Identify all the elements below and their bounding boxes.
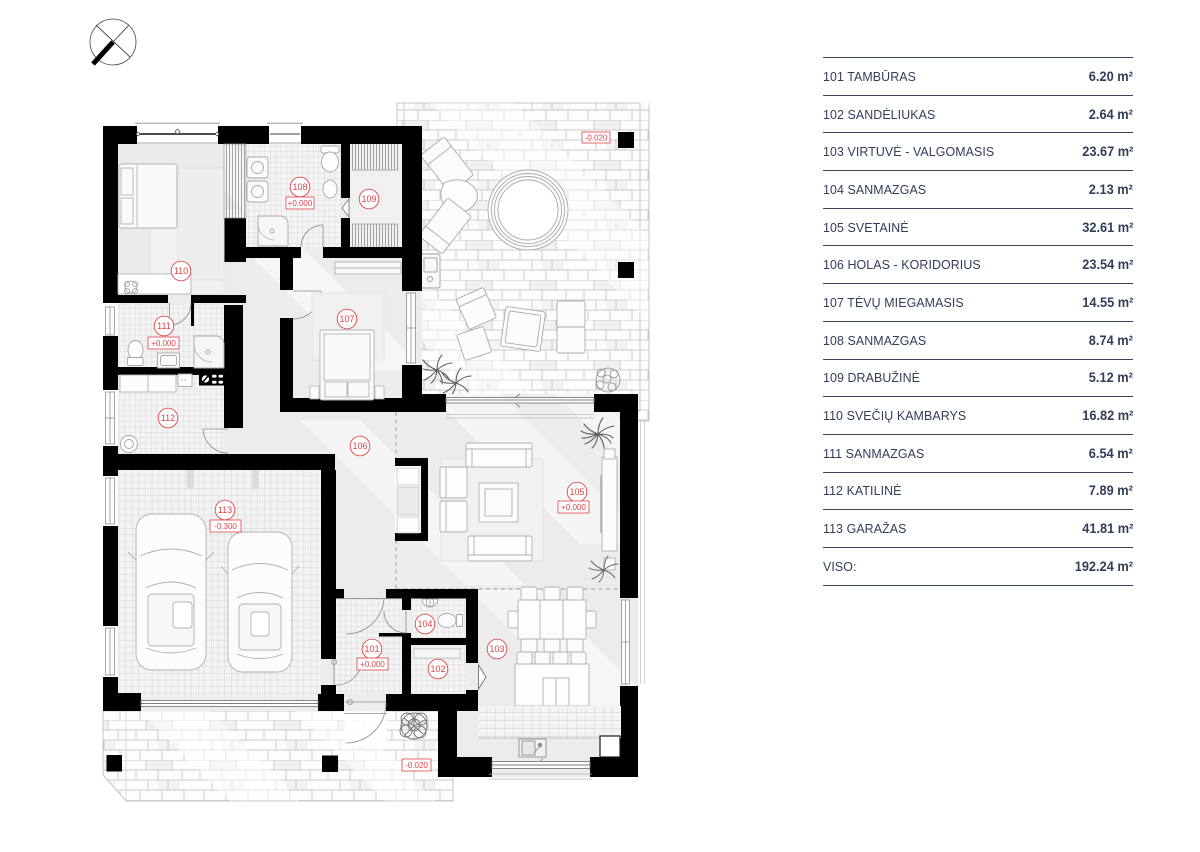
svg-text:108: 108 <box>292 182 307 192</box>
svg-text:-0.300: -0.300 <box>214 522 237 531</box>
svg-text:-0.020: -0.020 <box>405 761 428 770</box>
svg-text:105: 105 <box>569 487 584 497</box>
svg-text:111: 111 <box>157 321 171 331</box>
svg-text:109: 109 <box>361 194 376 204</box>
svg-text:-0.020: -0.020 <box>585 134 608 143</box>
svg-text:103: 103 <box>489 644 504 654</box>
svg-text:102: 102 <box>430 664 445 674</box>
svg-text:106: 106 <box>352 441 367 451</box>
svg-text:110: 110 <box>174 266 188 276</box>
svg-text:112: 112 <box>161 413 175 423</box>
svg-text:+0.000: +0.000 <box>288 199 313 208</box>
svg-text:101: 101 <box>364 644 379 654</box>
svg-text:104: 104 <box>417 619 432 629</box>
svg-text:+0.000: +0.000 <box>151 339 176 348</box>
svg-text:107: 107 <box>339 314 354 324</box>
svg-text:+0.000: +0.000 <box>360 660 385 669</box>
svg-text:+0.000: +0.000 <box>561 503 586 512</box>
svg-text:113: 113 <box>218 505 232 515</box>
